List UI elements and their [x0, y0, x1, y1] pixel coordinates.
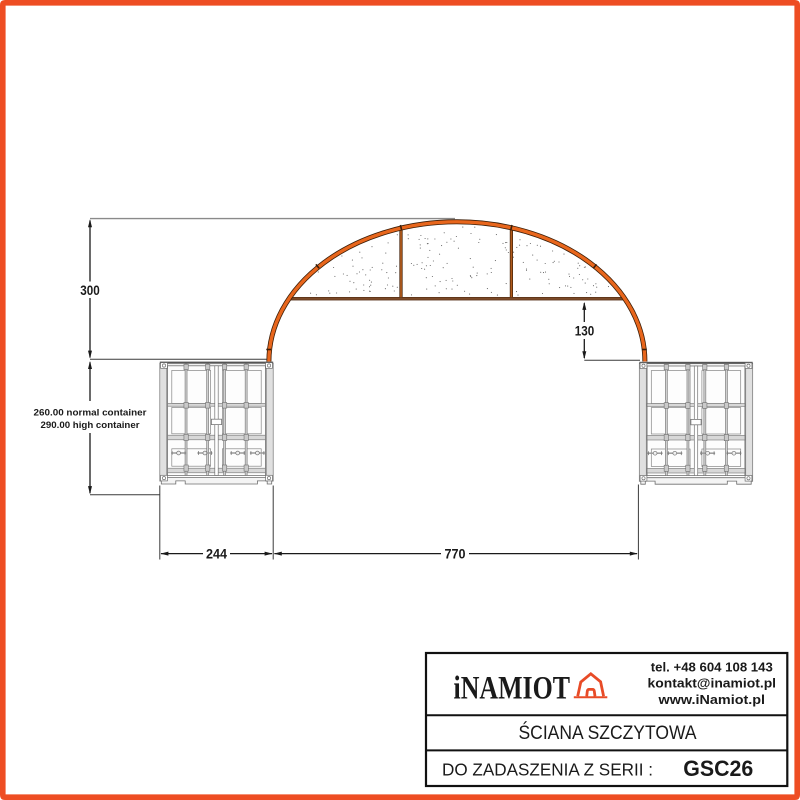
svg-text:tel. +48 604 108 143: tel. +48 604 108 143 — [651, 659, 773, 674]
svg-text:DO ZADASZENIA Z SERII :: DO ZADASZENIA Z SERII : — [442, 760, 653, 780]
svg-text:GSC26: GSC26 — [683, 756, 753, 781]
svg-text:iNAMIOT: iNAMIOT — [454, 671, 571, 707]
svg-text:290.00 high container: 290.00 high container — [41, 420, 140, 430]
svg-text:kontakt@inamiot.pl: kontakt@inamiot.pl — [648, 676, 777, 691]
svg-text:ŚCIANA SZCZYTOWA: ŚCIANA SZCZYTOWA — [519, 722, 697, 744]
svg-text:244: 244 — [206, 546, 228, 561]
svg-text:130: 130 — [575, 323, 595, 338]
svg-text:300: 300 — [80, 283, 100, 298]
svg-text:www.iNamiot.pl: www.iNamiot.pl — [657, 692, 765, 707]
svg-text:260.00 normal container: 260.00 normal container — [34, 408, 147, 418]
svg-text:770: 770 — [445, 546, 466, 561]
